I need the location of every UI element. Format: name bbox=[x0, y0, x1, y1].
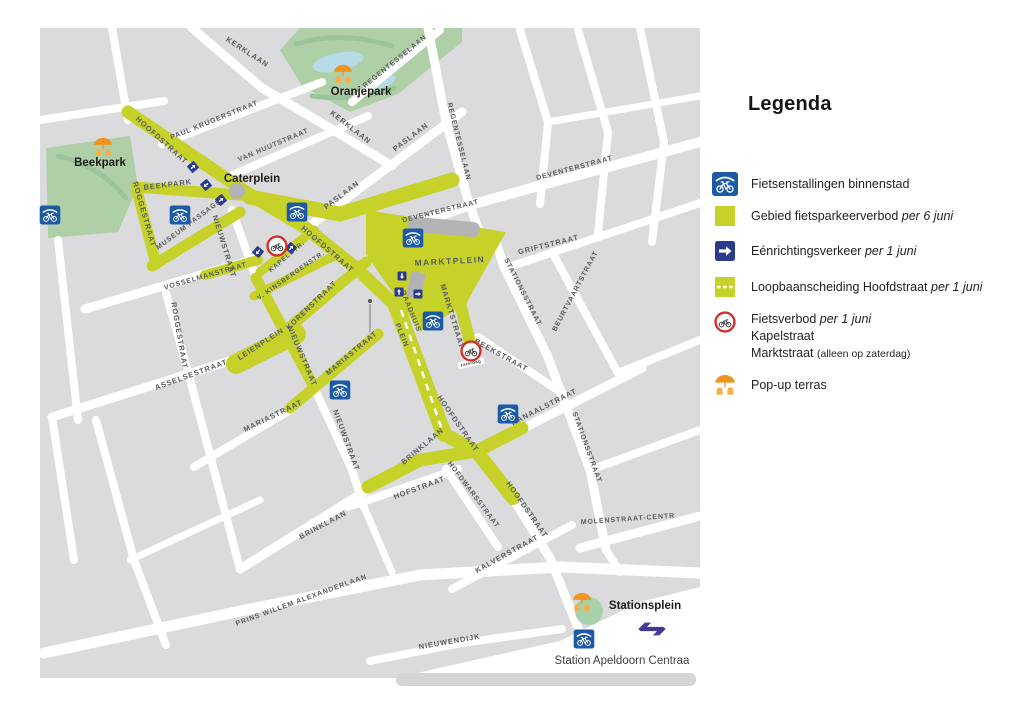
building bbox=[229, 183, 245, 199]
legend-item-1: Gebied fietsparkeerverbod per 6 juni bbox=[712, 206, 1012, 226]
bike-shelter-icon bbox=[712, 172, 738, 196]
bike-parking-icon bbox=[40, 206, 61, 225]
legend-item-3: Loopbaanscheiding Hoofdstraat per 1 juni bbox=[712, 277, 1012, 297]
bike-parking-icon bbox=[498, 405, 519, 424]
leader-dot bbox=[368, 299, 372, 303]
stationsplein-green bbox=[575, 597, 603, 625]
legend-item-text: Eénrichtingsverkeer per 1 juni bbox=[751, 243, 916, 260]
one-way-arrow-icon bbox=[414, 290, 423, 299]
bike-parking-icon bbox=[574, 630, 595, 649]
legend-item-text: Fietsenstallingen binnenstad bbox=[751, 176, 909, 193]
rail-platform bbox=[396, 673, 696, 686]
bike-parking-icon bbox=[423, 312, 444, 331]
place-label: Caterplein bbox=[224, 173, 280, 185]
place-label: Oranjepark bbox=[331, 86, 392, 98]
bike-parking-icon bbox=[287, 203, 308, 222]
place-label: Stationsplein bbox=[609, 600, 681, 612]
zone-square-icon bbox=[712, 206, 738, 226]
bike-ban-icon bbox=[268, 237, 287, 256]
legend-title: Legenda bbox=[748, 93, 832, 116]
terrace-icon bbox=[712, 374, 738, 396]
legend-item-text: Loopbaanscheiding Hoofdstraat per 1 juni bbox=[751, 279, 982, 296]
legend-item-text: Fietsverbod per 1 juniKapelstraatMarktst… bbox=[751, 311, 910, 363]
apeldoorn-bike-map-page: KERKLAANKERKLAANREGENTESSELAANREGENTESSE… bbox=[0, 0, 1024, 724]
legend-item-4: Fietsverbod per 1 juniKapelstraatMarktst… bbox=[712, 311, 1012, 363]
one-way-arrow-icon bbox=[395, 288, 404, 297]
place-label: Beekpark bbox=[74, 157, 126, 169]
lane-separation-icon bbox=[712, 277, 738, 297]
legend-item-2: Eénrichtingsverkeer per 1 juni bbox=[712, 241, 1012, 261]
one-way-arrow-icon bbox=[398, 272, 407, 281]
bike-parking-icon bbox=[170, 206, 191, 225]
legend-item-5: Pop-up terras bbox=[712, 374, 1012, 396]
one-way-icon bbox=[712, 241, 738, 261]
legend-item-0: Fietsenstallingen binnenstad bbox=[712, 172, 1012, 196]
legend-item-text: Pop-up terras bbox=[751, 377, 827, 394]
station-label: Station Apeldoorn Centraa bbox=[555, 655, 691, 667]
legend-panel: Legenda Fietsenstallingen binnenstadGebi… bbox=[710, 0, 1020, 724]
bike-ban-icon bbox=[712, 311, 738, 333]
bike-ban-icon bbox=[462, 342, 481, 361]
legend-item-text: Gebied fietsparkeerverbod per 6 juni bbox=[751, 208, 953, 225]
bike-parking-icon bbox=[403, 229, 424, 248]
bike-parking-icon bbox=[330, 381, 351, 400]
